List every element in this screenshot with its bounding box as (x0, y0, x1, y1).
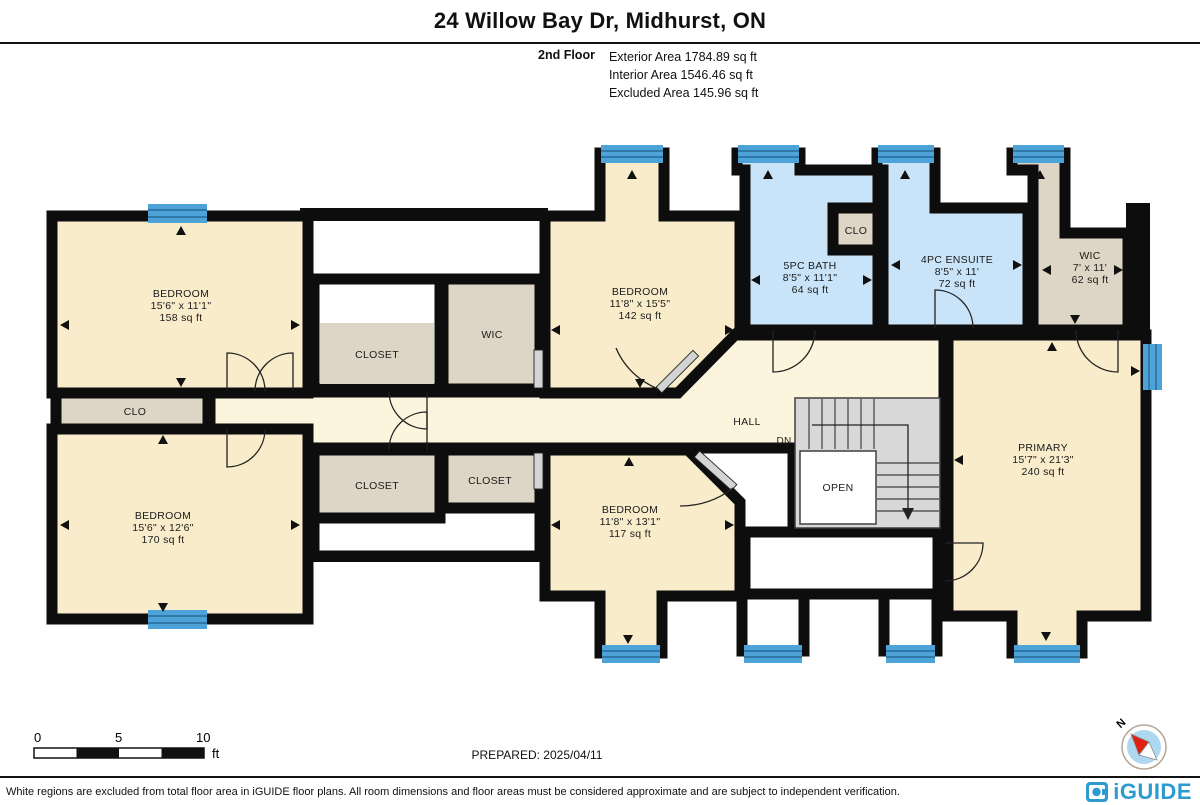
area-lines: Exterior Area 1784.89 sq ft Interior Are… (609, 48, 758, 102)
room-dims: 11'8" x 13'1" (600, 516, 661, 528)
floorplan-page: 24 Willow Bay Dr, Midhurst, ON 2nd Floor… (0, 0, 1200, 805)
room-area: 117 sq ft (609, 528, 651, 540)
scale-tick-10: 10 (196, 730, 210, 745)
excluded-area: Excluded Area 145.96 sq ft (609, 84, 758, 102)
room-label: WIC (481, 329, 502, 341)
stairs-open-label: OPEN (823, 482, 854, 494)
room-label: 4PC ENSUITE (921, 254, 993, 266)
iguide-camera-icon (1085, 781, 1109, 803)
room-dims: 8'5" x 11'1" (783, 272, 838, 284)
room-ensuite: 4PC ENSUITE 8'5" x 11' 72 sq ft (877, 153, 1028, 330)
footer-disclaimer: White regions are excluded from total fl… (0, 786, 900, 798)
room-primary: PRIMARY 15'7" x 21'3" 240 sq ft (948, 335, 1146, 653)
room-area: 72 sq ft (939, 278, 976, 290)
room-area: 64 sq ft (792, 284, 829, 296)
floor-label: 2nd Floor (538, 48, 595, 102)
room-dims: 8'5" x 11' (935, 266, 979, 278)
footer-bar: White regions are excluded from total fl… (0, 776, 1200, 805)
room-wic-right: WIC 7' x 11' 62 sq ft (1012, 153, 1128, 330)
room-area: 158 sq ft (160, 312, 203, 324)
room-label: BEDROOM (135, 510, 191, 522)
room-area: 170 sq ft (142, 534, 185, 546)
area-summary: 2nd Floor Exterior Area 1784.89 sq ft In… (538, 48, 758, 102)
prepared-date: PREPARED: 2025/04/11 (0, 748, 1074, 762)
brand-logo: iGUIDE (1085, 779, 1200, 805)
window (148, 204, 207, 223)
page-title: 24 Willow Bay Dr, Midhurst, ON (0, 8, 1200, 34)
room-dims: 15'7" x 21'3" (1012, 454, 1074, 466)
room-dims: 15'6" x 11'1" (151, 300, 212, 312)
stairwell: DN OPEN (776, 398, 940, 528)
room-label: BEDROOM (612, 286, 668, 298)
stairs-dn-label: DN (776, 436, 791, 447)
hall-label: HALL (733, 416, 760, 428)
room-area: 142 sq ft (619, 310, 662, 322)
room-dims: 7' x 11' (1073, 262, 1107, 274)
room-bedroom-top-left: BEDROOM 15'6" x 11'1" 158 sq ft (52, 216, 308, 393)
room-dims: 15'6" x 12'6" (132, 522, 194, 534)
room-closet-top: CLOSET (314, 279, 440, 389)
room-area: 240 sq ft (1022, 466, 1065, 478)
compass-rose: N (1108, 714, 1172, 776)
room-label: BEDROOM (602, 504, 658, 516)
room-closet-bottom-left: CLOSET (314, 450, 440, 518)
room-label: CLOSET (355, 480, 399, 492)
scale-tick-5: 5 (115, 730, 122, 745)
room-area: 62 sq ft (1072, 274, 1109, 286)
window (738, 145, 799, 163)
door-slab (534, 453, 543, 489)
window (148, 610, 207, 629)
room-label: CLO (845, 225, 868, 237)
window (878, 145, 934, 163)
header-divider (0, 42, 1200, 44)
room-label: PRIMARY (1018, 442, 1068, 454)
room-label: BEDROOM (153, 288, 209, 300)
room-wic-center: WIC (443, 279, 540, 389)
window (886, 645, 935, 663)
brand-name: iGUIDE (1113, 779, 1192, 805)
room-label: CLO (124, 406, 147, 418)
exterior-area: Exterior Area 1784.89 sq ft (609, 48, 758, 66)
room-bedroom-bottom-center: BEDROOM 11'8" x 13'1" 117 sq ft (545, 450, 740, 653)
room-bedroom-bottom-left: BEDROOM 15'6" x 12'6" 170 sq ft (52, 429, 308, 619)
floorplan-drawing: HALL DN OPEN (0, 128, 1200, 688)
window (602, 645, 660, 663)
window (1143, 344, 1162, 390)
window (1014, 645, 1080, 663)
room-label: 5PC BATH (784, 260, 837, 272)
door-slab (534, 350, 543, 388)
scale-tick-0: 0 (34, 730, 41, 745)
room-closet-bottom-center: CLOSET (443, 450, 540, 508)
room-dims: 11'8" x 15'5" (610, 298, 671, 310)
window (744, 645, 802, 663)
room-bedroom-top-center: BEDROOM 11'8" x 15'5" 142 sq ft (545, 153, 740, 393)
window (1013, 145, 1064, 163)
compass-n-label: N (1114, 717, 1128, 731)
window (601, 145, 663, 163)
room-label: CLOSET (468, 475, 512, 487)
room-label: WIC (1079, 250, 1100, 262)
room-clo-small: CLO (833, 208, 878, 250)
interior-area: Interior Area 1546.46 sq ft (609, 66, 758, 84)
room-label: CLOSET (355, 349, 399, 361)
